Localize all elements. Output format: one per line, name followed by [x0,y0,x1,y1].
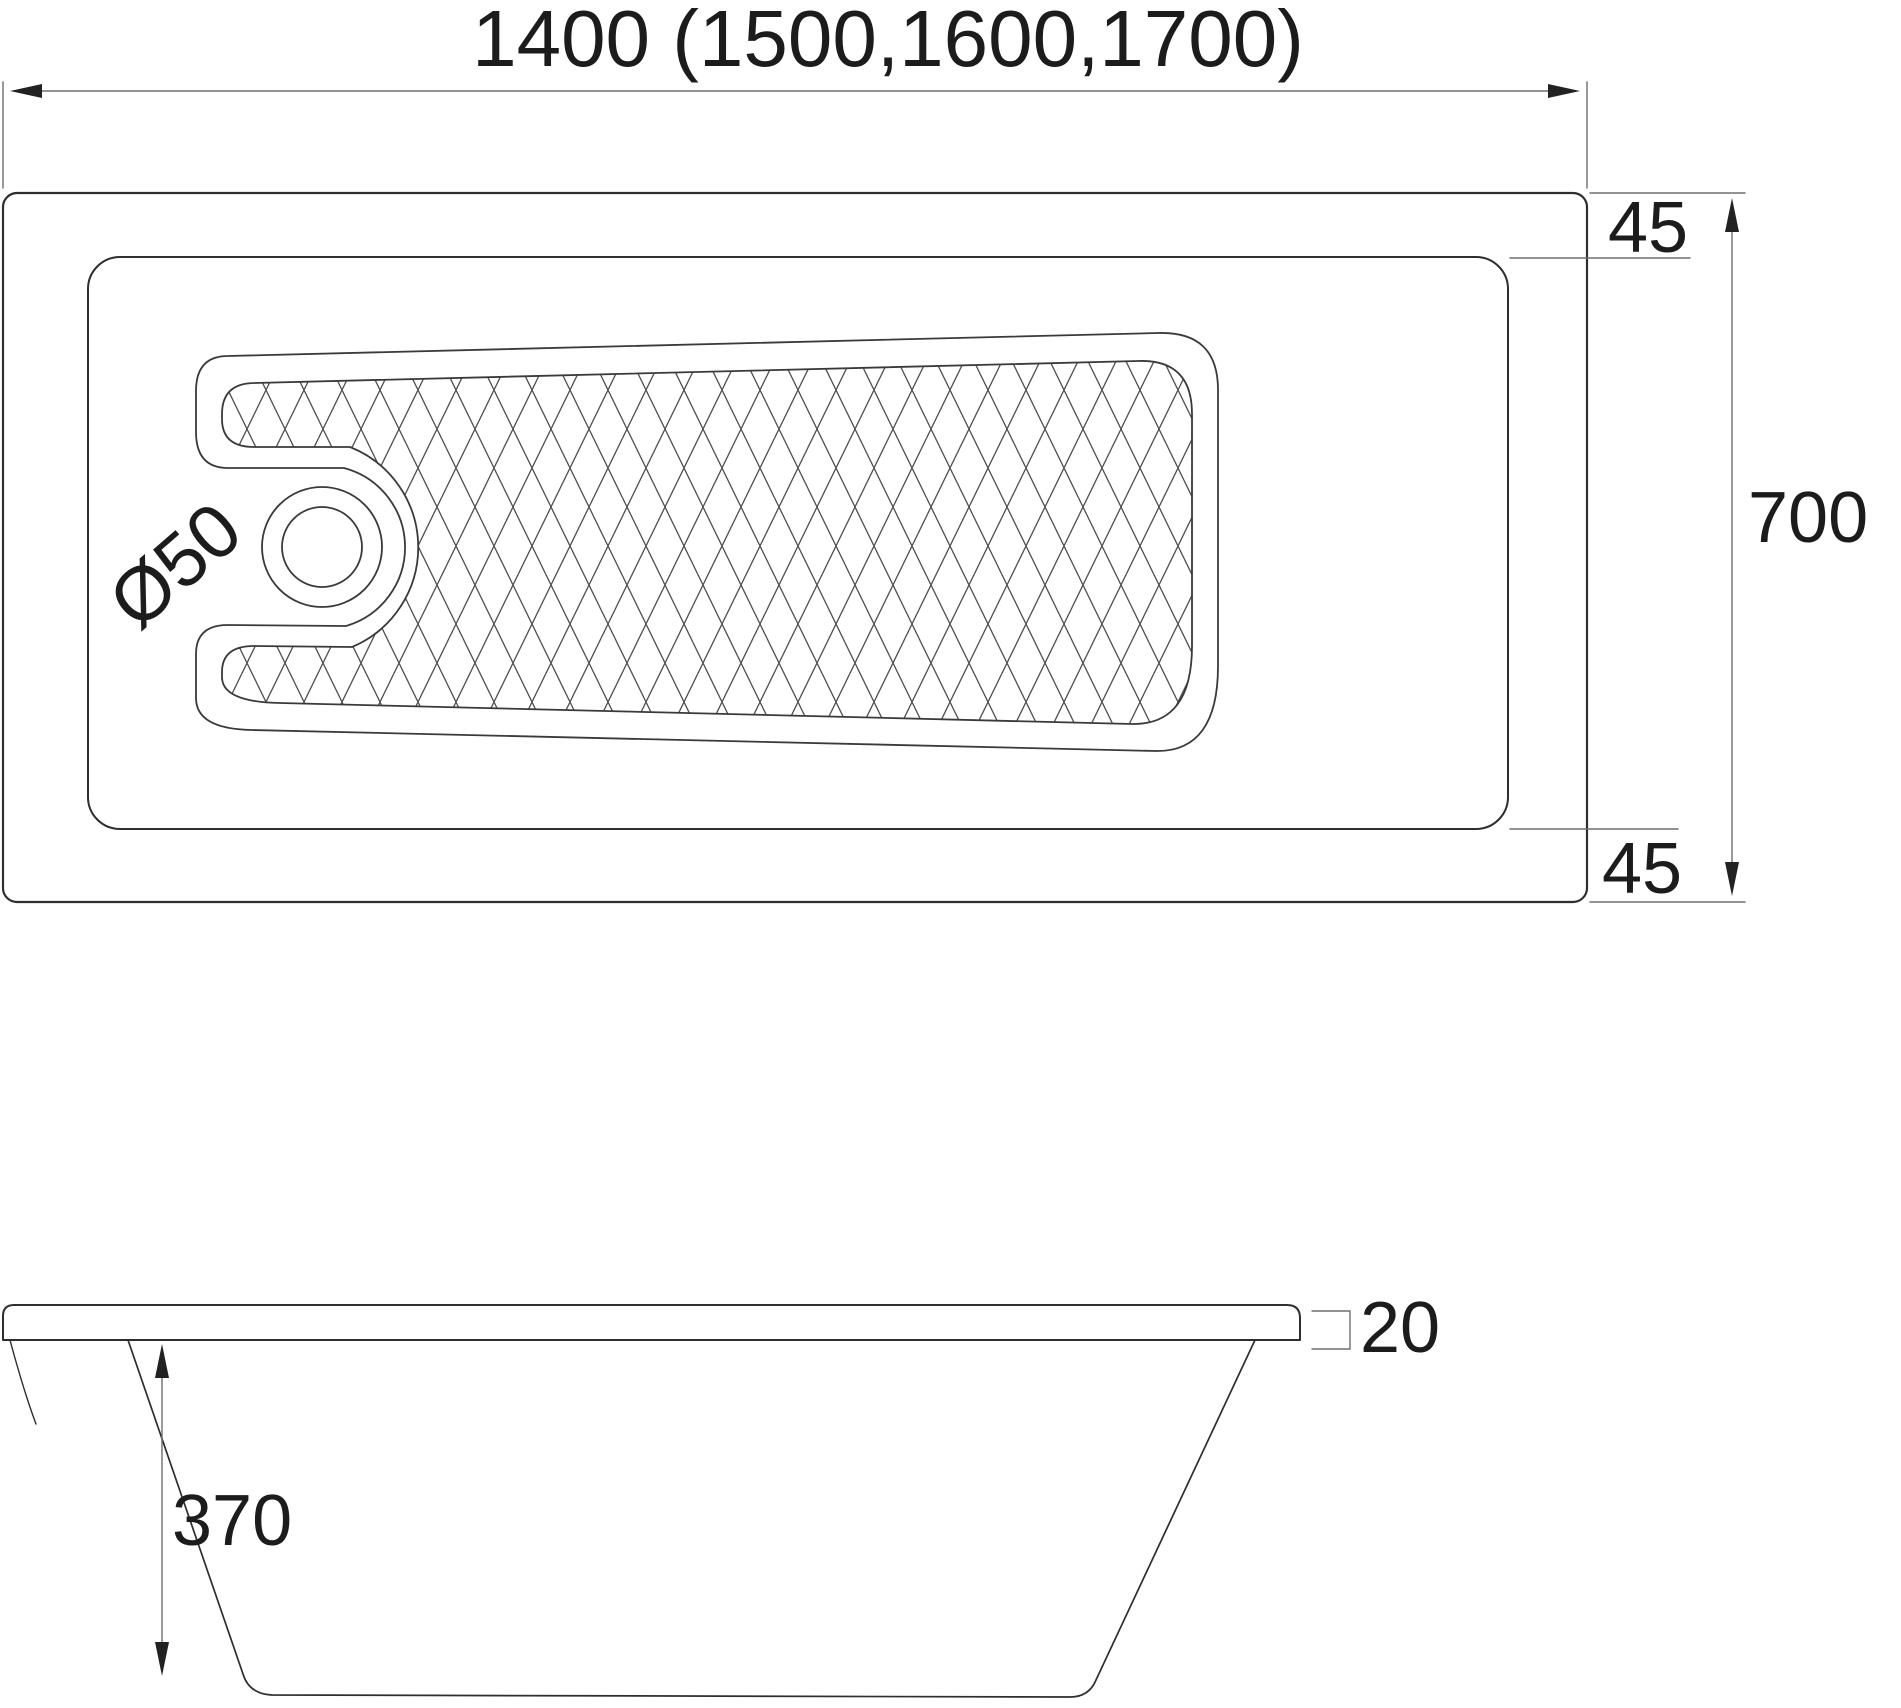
dimension-lines [3,82,1745,1644]
arrow-depth-top [155,1344,169,1378]
dim-rim-thickness-label: 20 [1360,1288,1440,1368]
dim-rim-top-label: 45 [1608,188,1688,268]
dim-depth-label: 370 [172,1481,292,1561]
arrow-width-top [1725,198,1739,232]
arrow-length-right [1548,84,1580,98]
arrow-depth-bottom [155,1642,169,1676]
drain-outer-circle [262,487,382,607]
arrow-length-left [10,84,42,98]
dim-rim-bottom-label: 45 [1602,829,1682,909]
side-rim-slab [3,1305,1300,1340]
antislip-mat-area [222,361,1192,724]
basin-group [196,333,1218,751]
side-body-profile [128,1340,1255,1697]
dimension-arrows [10,84,1739,1676]
dim-length-label: 1400 (1500,1600,1700) [472,0,1304,83]
side-left-apron-line [10,1340,36,1424]
dimension-labels: 1400 (1500,1600,1700) 45 700 45 Ø50 370 … [93,0,1868,1561]
dim-drain-diameter-label: Ø50 [93,486,257,644]
arrow-width-bottom [1725,862,1739,896]
bathtub-technical-drawing: 1400 (1500,1600,1700) 45 700 45 Ø50 370 … [0,0,1901,1708]
rim-thickness-bracket [1312,1311,1350,1349]
drawing-page: 1400 (1500,1600,1700) 45 700 45 Ø50 370 … [0,0,1901,1708]
drain-inner-circle [282,507,362,587]
dim-width-label: 700 [1748,478,1868,558]
